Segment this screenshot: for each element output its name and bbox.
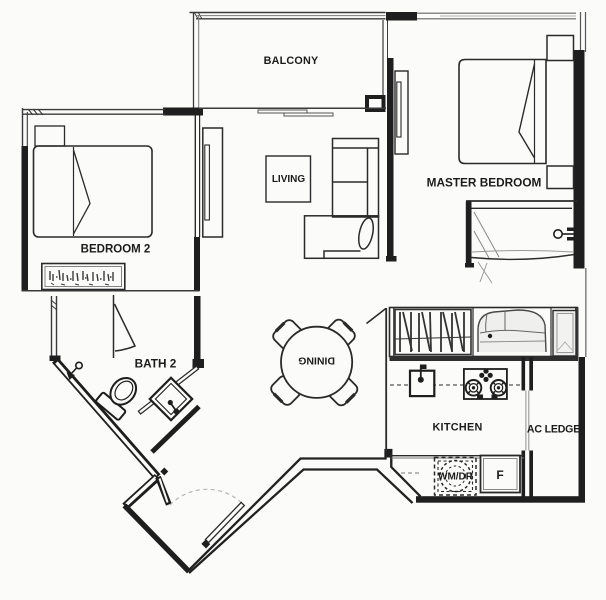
- svg-text:F: F: [496, 468, 503, 482]
- svg-text:LIVING: LIVING: [272, 174, 306, 185]
- svg-text:DINING: DINING: [298, 355, 335, 367]
- svg-text:MASTER BEDROOM: MASTER BEDROOM: [427, 175, 542, 189]
- svg-text:BATH 2: BATH 2: [135, 357, 177, 371]
- svg-text:BALCONY: BALCONY: [264, 55, 319, 67]
- svg-text:AC LEDGE: AC LEDGE: [527, 424, 580, 436]
- svg-text:KITCHEN: KITCHEN: [432, 422, 482, 434]
- svg-text:BEDROOM 2: BEDROOM 2: [81, 244, 151, 256]
- svg-text:WM/DR: WM/DR: [438, 472, 474, 483]
